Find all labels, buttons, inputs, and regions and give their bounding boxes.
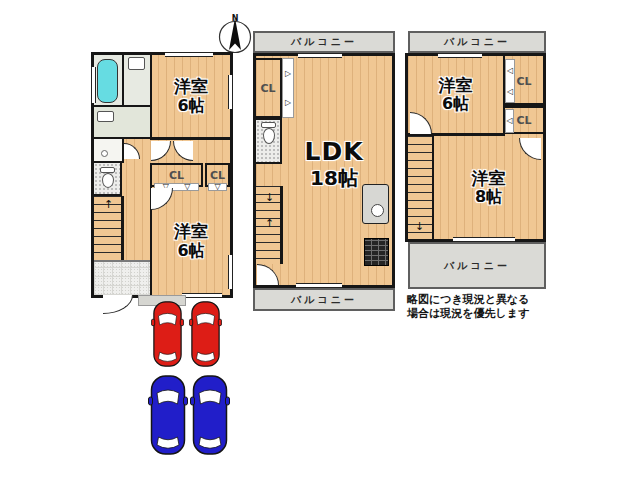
closet-label: CL [260, 82, 275, 95]
floor3-plan: 洋室 6帖 CL ◁ ◁ CL ◁ ↓ 洋室 8帖 [405, 53, 546, 242]
wash-basin [97, 111, 114, 122]
stairs-down-arrow-icon: ↓ [415, 221, 424, 232]
parked-car-red-1 [151, 297, 184, 371]
room-name: 洋室 [174, 222, 208, 242]
stairs-down-arrow-icon: ↓ [265, 192, 274, 203]
window [438, 53, 482, 58]
room-name: 洋室 [472, 169, 506, 189]
balcony-3f-top: バルコニー [408, 31, 546, 53]
window [165, 52, 213, 57]
door-arc [124, 143, 140, 159]
bifold-mark-icon: ▷ [285, 99, 291, 107]
bifold-mark-icon: ◁ [506, 117, 512, 125]
sink-bowl [371, 204, 384, 217]
entrance-genkan [94, 260, 150, 295]
bifold-mark-icon: ▷ [285, 70, 291, 78]
door-arc [173, 141, 193, 161]
parked-car-red-2 [189, 297, 222, 371]
utility-room [94, 139, 124, 163]
bifold-door: ▷ ▷ [282, 58, 294, 118]
parked-car-blue-2 [190, 371, 230, 459]
balcony-2f-bottom: バルコニー [253, 288, 395, 311]
compass: N [212, 10, 258, 56]
room-name: 洋室 [439, 76, 473, 96]
balcony-label: バルコニー [291, 293, 357, 307]
door-arc [151, 141, 171, 161]
front-door-arc [103, 295, 133, 314]
window [91, 67, 96, 103]
balcony-label: バルコニー [444, 35, 510, 49]
closet-label: CL [169, 169, 184, 182]
bifold-door: ◁ ◁ [505, 59, 515, 103]
bifold-door: ◁ [505, 109, 514, 133]
disclaimer-note: 略図につき現況と異なる 場合は現況を優先します [407, 293, 557, 322]
floor2-plan: CL ▷ ▷ ↓ ↑ LDK 18帖 [253, 53, 395, 288]
room-size: 8帖 [475, 188, 502, 206]
disclaimer-line1: 略図につき現況と異なる [407, 293, 557, 307]
room-size: 6帖 [177, 242, 204, 260]
window [228, 75, 233, 109]
drain [101, 150, 108, 157]
balcony-2f-top: バルコニー [253, 31, 395, 53]
balcony-label: バルコニー [444, 259, 510, 273]
disclaimer-line2: 場合は現況を優先します [407, 307, 557, 321]
closet-label: CL [516, 75, 531, 88]
floor1-plan: ↑ 洋室 6帖 CL ▽ ▽ CL ▽ 洋室 6帖 [91, 52, 233, 298]
room-size: 6帖 [442, 95, 469, 113]
stove [364, 238, 389, 266]
balcony-3f-bottom: バルコニー [408, 242, 546, 289]
parked-car-blue-1 [148, 371, 188, 459]
bathtub [97, 59, 118, 103]
room-size: 6帖 [177, 97, 204, 115]
washing-machine [128, 57, 145, 70]
door-arc [257, 264, 279, 285]
closet-label: CL [516, 114, 531, 127]
room-name: 洋室 [174, 77, 208, 97]
room-size: 18帖 [310, 167, 358, 190]
bifold-mark-icon: ◁ [507, 88, 513, 96]
balcony-label: バルコニー [291, 35, 357, 49]
window [228, 255, 233, 289]
room-name: LDK [304, 138, 363, 167]
closet-label: CL [210, 169, 225, 182]
floorplan-sheet: N ↑ 洋室 6帖 CL [0, 0, 640, 480]
bedroom-1f-top: 洋室 6帖 [150, 55, 230, 140]
closet-2f: CL [256, 58, 282, 118]
stairs-up-arrow-icon: ↑ [104, 199, 113, 210]
compass-north-label: N [232, 14, 239, 23]
bifold-mark-icon: ◁ [507, 67, 513, 75]
window [298, 53, 342, 58]
stairs-up-arrow-icon: ↑ [265, 218, 274, 229]
